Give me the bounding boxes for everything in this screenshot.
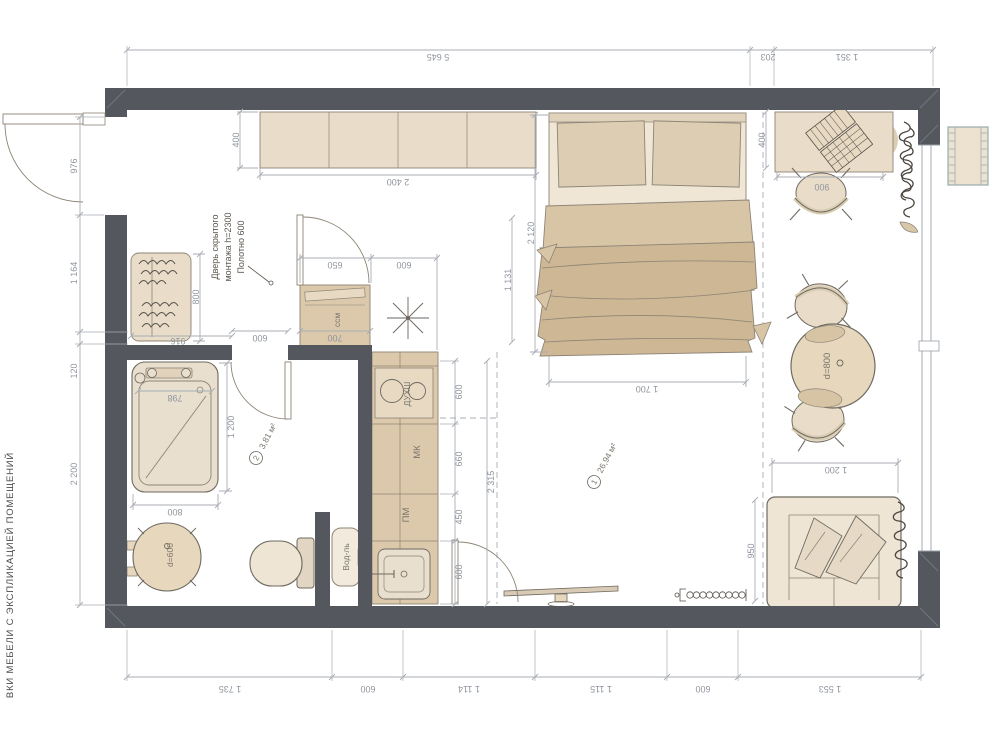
dim-label: 600 (454, 564, 464, 579)
tv-stand (555, 594, 567, 602)
dim-label: 600 (360, 684, 375, 694)
faucet-knob (182, 369, 191, 378)
window-mullion (919, 341, 939, 351)
dim-label: 2 315 (486, 471, 496, 494)
wall-left-stub (105, 88, 127, 117)
dim-label: 800 (191, 289, 201, 304)
washer-label: ссм (332, 313, 342, 328)
exterior-radiator (948, 127, 988, 185)
water-heater-label: Вод-ль (341, 543, 351, 571)
bathroom-door (231, 362, 291, 419)
radiator-coil (719, 592, 725, 598)
dim-label: 1 200 (825, 465, 848, 475)
wall-bathroom (105, 345, 232, 360)
sofa (767, 497, 901, 608)
dim-label: 1 735 (219, 684, 242, 694)
door-swing-arc (231, 362, 288, 419)
dim-label: 660 (454, 451, 464, 466)
floor-plan-drawing: d=600 Вод-ль ссм ДУХШ МК ПМ (0, 0, 1000, 742)
small-round-table: d=600 (127, 523, 201, 591)
dim-label: 1 553 (819, 684, 842, 694)
starburst-center (407, 317, 410, 320)
dim-label: 1 164 (69, 262, 79, 285)
headboard (549, 113, 746, 122)
dim-label: 600 (454, 384, 464, 399)
dim-label: 600 (252, 333, 267, 343)
leader-dot (269, 281, 273, 285)
bathtub (132, 362, 218, 492)
door-leaf (285, 362, 291, 419)
dim-label: 650 (327, 260, 342, 270)
room-label-2: 2 3,81 м² (247, 421, 280, 467)
mk-label: МК (412, 445, 423, 459)
door-threshold (83, 113, 105, 125)
radiator-coil (732, 592, 738, 598)
desk-chair (790, 168, 852, 220)
desk-area (775, 105, 898, 220)
radiator-coil (726, 592, 732, 598)
dim-label: 600 (396, 260, 411, 270)
dim-label: 976 (69, 158, 79, 173)
blanket-flap (753, 322, 771, 344)
upper-cabinets (260, 112, 536, 168)
dim-label: 203 (760, 52, 775, 62)
bed (535, 113, 771, 356)
wall-left (105, 215, 127, 606)
dim-label: 450 (454, 509, 464, 524)
oven-label: ДУХШ (402, 381, 412, 406)
leader-line (248, 266, 269, 282)
wall-kitchen (358, 352, 372, 606)
dim-label: 1 200 (226, 416, 236, 439)
radiator-coil (700, 592, 706, 598)
light-fixture-icon (387, 297, 429, 339)
wardrobe (131, 253, 191, 341)
radiator-coil (713, 592, 719, 598)
dim-label: 800 (167, 507, 182, 517)
dim-line (546, 356, 749, 387)
right-window (918, 145, 940, 551)
room-area: 26,94 м² (595, 441, 619, 474)
exterior-radiator-body (948, 127, 988, 185)
floor-plan: d=600 Вод-ль ссм ДУХШ МК ПМ (0, 0, 1000, 742)
tv (504, 586, 618, 607)
dim-label: 1 114 (458, 684, 480, 694)
room-number: 2 (251, 454, 261, 463)
dim-extensions (127, 46, 933, 86)
door-swing-arc (303, 217, 369, 283)
dim-label: 600 (695, 684, 710, 694)
pillow (557, 121, 646, 187)
radiator-coil (739, 592, 745, 598)
dim-label: 400 (757, 132, 767, 147)
wall-right-top (918, 88, 940, 145)
pm-label: ПМ (401, 508, 412, 523)
dim-label: 950 (746, 543, 756, 558)
toilet-bowl (250, 541, 302, 586)
wall-bottom (105, 606, 940, 628)
radiator-valve (675, 593, 679, 597)
door-note-line: Полотно 600 (236, 220, 246, 273)
wall-niche (315, 512, 330, 606)
dim-label: 916 (170, 336, 185, 346)
floor-radiator (675, 589, 746, 601)
dim-label: 120 (69, 363, 79, 378)
dim-label: 1 351 (836, 52, 859, 62)
dim-label: 700 (327, 333, 342, 343)
hidden-door (297, 215, 369, 285)
radiator-coil (706, 592, 712, 598)
door-leaf (3, 114, 83, 124)
dim-label: 2 400 (387, 177, 410, 187)
entrance-door (3, 113, 105, 202)
dining-set: d=800 (784, 273, 875, 452)
dim-label: 1 115 (590, 684, 612, 694)
wardrobe-body (131, 253, 191, 341)
door-note-line: Дверь скрытого (210, 214, 220, 279)
dim-label: 2 120 (526, 222, 536, 245)
dim-label: 1 700 (636, 384, 659, 394)
dim-label: 900 (814, 182, 829, 192)
table-diameter-label: d=600 (165, 543, 175, 567)
radiator-coil (687, 592, 693, 598)
dim-label: 400 (231, 132, 241, 147)
pillow (652, 121, 741, 187)
room-area: 3,81 м² (257, 421, 279, 450)
table-diameter-label: d=800 (822, 353, 833, 380)
plant-leaf (900, 222, 918, 232)
dim-extensions (127, 630, 921, 681)
room-label-1: 1 26,94 м² (585, 441, 620, 491)
radiator-bracket (680, 589, 686, 601)
sheet-side-note: ВКИ МЕБЕЛИ С ЭКСПЛИКАЦИЕЙ ПОМЕЩЕНИЙ (4, 452, 16, 698)
door-note-line: монтажа h=2300 (223, 213, 233, 282)
dim-label: 2 200 (69, 463, 79, 486)
kitchen-run: ДУХШ МК ПМ (372, 352, 438, 604)
dining-chair-top (786, 273, 856, 332)
room-number: 1 (589, 478, 599, 487)
dim-label: 5 645 (427, 52, 450, 62)
faucet-spout (135, 373, 145, 383)
dim-label: 1 131 (503, 269, 513, 292)
dim-label: 798 (167, 393, 182, 403)
wall-top (105, 88, 940, 110)
faucet-knob (148, 369, 157, 378)
toilet (250, 538, 314, 588)
radiator-coil (693, 592, 699, 598)
